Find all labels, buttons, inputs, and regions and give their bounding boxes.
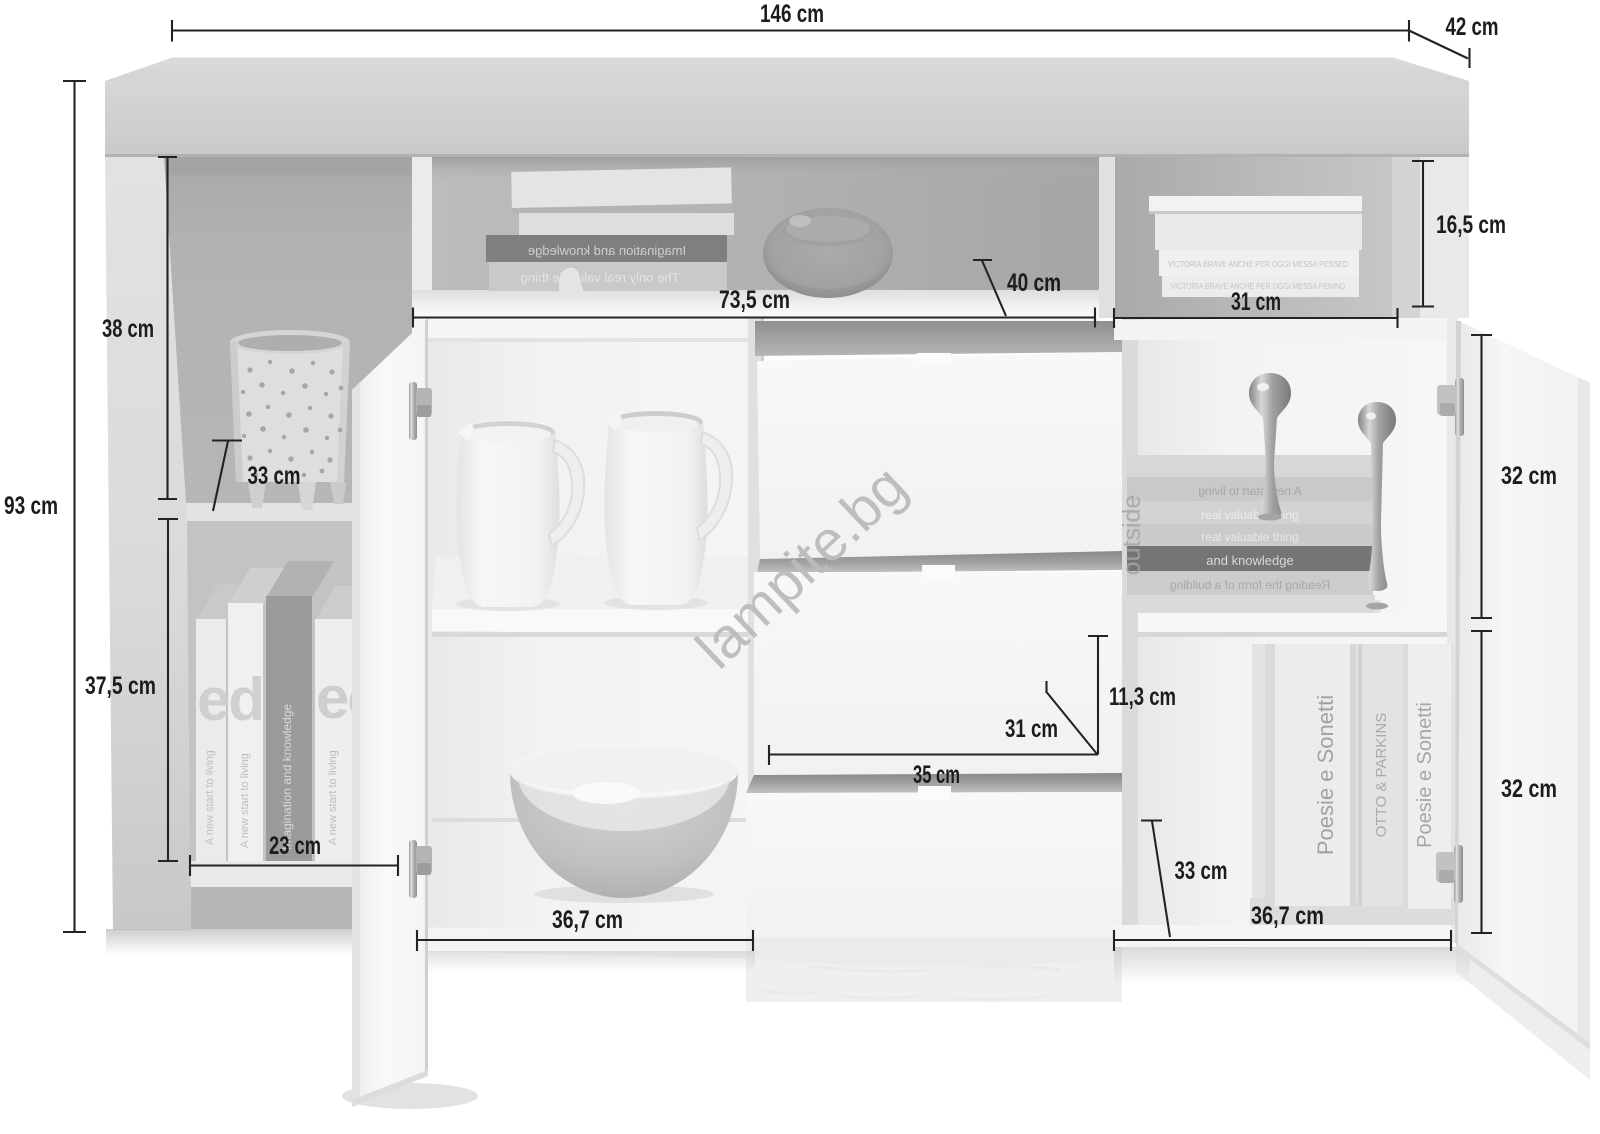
svg-text:146 cm: 146 cm	[760, 0, 824, 28]
svg-text:Reading the form of a building: Reading the form of a building	[1170, 578, 1330, 592]
svg-text:outside: outside	[1118, 495, 1146, 576]
svg-text:Imagination and knowledge: Imagination and knowledge	[528, 243, 686, 258]
svg-text:ed: ed	[197, 666, 263, 733]
svg-text:38 cm: 38 cm	[102, 315, 154, 343]
svg-text:Poesie e Sonetti: Poesie e Sonetti	[1414, 702, 1436, 848]
svg-text:and knowledge: and knowledge	[1206, 553, 1293, 568]
svg-text:23 cm: 23 cm	[269, 832, 321, 860]
svg-text:Poesie e Sonetti: Poesie e Sonetti	[1313, 695, 1338, 855]
svg-text:33 cm: 33 cm	[248, 462, 301, 490]
svg-text:real valuable thing: real valuable thing	[1201, 530, 1298, 544]
svg-text:16,5 cm: 16,5 cm	[1436, 211, 1506, 239]
svg-text:33 cm: 33 cm	[1175, 857, 1228, 885]
svg-text:93 cm: 93 cm	[4, 492, 58, 520]
svg-text:31 cm: 31 cm	[1005, 715, 1058, 743]
svg-text:Imagination and knowledge: Imagination and knowledge	[280, 704, 294, 850]
svg-text:35 cm: 35 cm	[913, 761, 960, 789]
svg-text:A new start to living: A new start to living	[239, 753, 251, 848]
svg-text:A new start to living: A new start to living	[327, 750, 339, 845]
svg-text:37,5 cm: 37,5 cm	[85, 672, 156, 700]
svg-text:36,7 cm: 36,7 cm	[552, 906, 623, 934]
svg-text:73,5 cm: 73,5 cm	[719, 286, 790, 314]
svg-text:32 cm: 32 cm	[1501, 775, 1557, 803]
svg-text:A new start to living: A new start to living	[1198, 484, 1301, 498]
svg-text:VICTORIA BRAVE ANCHE PER OGG: VICTORIA BRAVE ANCHE PER OGGI MESSA PESS…	[1168, 260, 1348, 269]
svg-text:36,7 cm: 36,7 cm	[1251, 902, 1324, 930]
svg-text:42 cm: 42 cm	[1446, 13, 1499, 41]
svg-text:OTTO & PARKINS: OTTO & PARKINS	[1373, 713, 1390, 837]
svg-text:31 cm: 31 cm	[1231, 288, 1281, 316]
svg-text:40 cm: 40 cm	[1007, 269, 1061, 297]
svg-text:11,3 cm: 11,3 cm	[1109, 683, 1176, 711]
svg-text:The only real valuable thing: The only real valuable thing	[521, 270, 680, 285]
svg-text:real valuable thing: real valuable thing	[1201, 508, 1298, 522]
svg-text:A new start to living: A new start to living	[204, 750, 216, 845]
svg-text:32 cm: 32 cm	[1501, 462, 1557, 490]
